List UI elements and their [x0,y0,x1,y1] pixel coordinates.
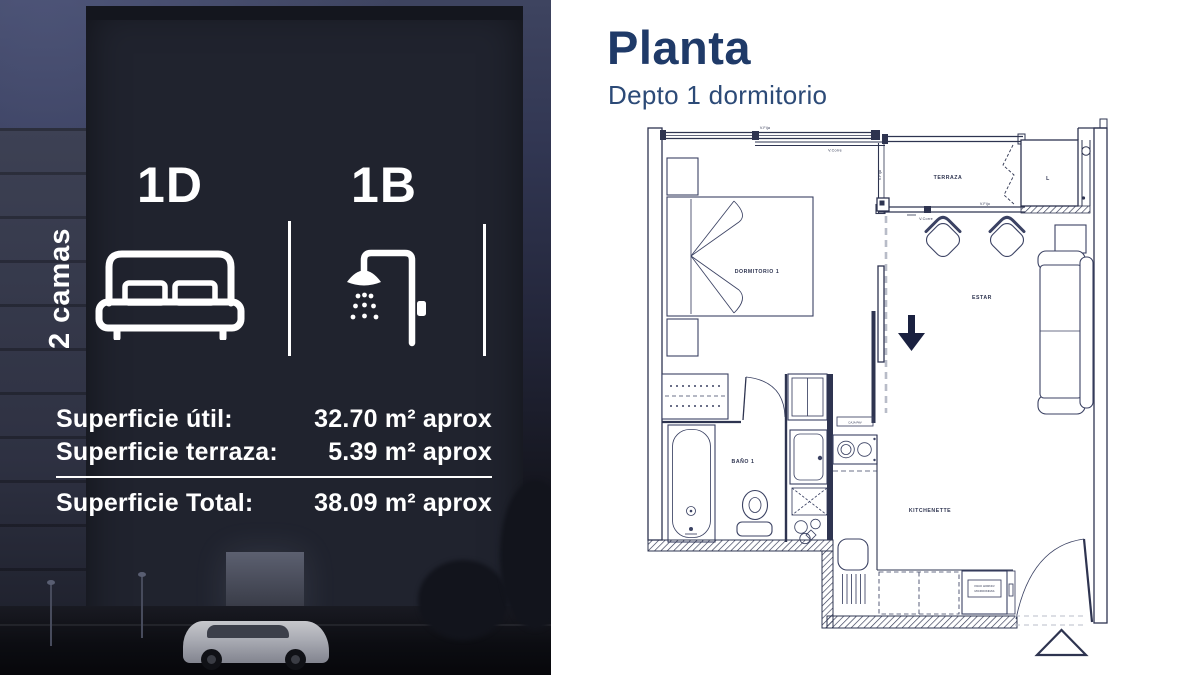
armchair [984,215,1029,260]
tower-parapet [86,6,523,20]
window-label: V.Corre [919,217,933,221]
vanity-sink [790,430,827,484]
dormitorio: DORMITORIO 1 [667,158,813,356]
sofa [1038,251,1093,414]
bedrooms-badge: 1D [95,160,245,210]
triangle-access-icon [1037,630,1086,655]
terraza-folding-door [1003,145,1015,205]
svg-text:CAJA PAV: CAJA PAV [848,421,861,425]
dormitorio-label: DORMITORIO 1 [735,269,780,275]
window-label: V.Fija [760,126,771,130]
bed-icon [95,245,245,340]
hall-cabinet [788,374,827,420]
car-windows [207,625,289,638]
base-cabinets [879,572,959,614]
divider-line [483,224,486,356]
surface-total-row: Superficie Total: 38.09 m² aprox [56,488,492,518]
terraza-label: TERRAZA [934,175,963,181]
surface-value: 5.39 m² aprox [328,437,492,467]
surface-value: 32.70 m² aprox [314,404,492,434]
car-wheel [285,649,306,670]
bathrooms-badge: 1B [338,160,430,210]
floor-plan-drawing: V.Fija V.Corre TERRAZA V.Fijo V.Corre [635,118,1115,663]
terraza: TERRAZA V.Fijo V.Corre V.Fija [876,134,1025,221]
closet [662,374,728,419]
entry-door [1015,539,1092,625]
surface-row: Superficie útil: 32.70 m² aprox [56,404,492,434]
estar-label: ESTAR [972,295,992,301]
duct-shaft [792,488,827,544]
totals-divider [56,476,492,478]
water-heater [1082,147,1090,155]
surface-label: Superficie terraza: [56,437,278,467]
divider-line [288,221,291,356]
double-bed [667,197,813,316]
side-table [1055,225,1086,253]
logia-label: L [1046,176,1050,182]
surface-total-value: 38.09 m² aprox [314,488,492,518]
window-band-top: V.Fija V.Corre [660,126,885,153]
beds-vertical-label: 2 camas [44,227,77,349]
armchair [920,215,965,260]
bathtub [668,425,715,542]
car-wheel [201,649,222,670]
surface-row: Superficie terraza: 5.39 m² aprox [56,437,492,467]
window-label: V.Fijo [980,202,990,206]
window-label: V.Corre [828,149,842,153]
nightstand [667,158,698,195]
tree-silhouette [418,560,508,640]
svg-text:PACK HORNO/: PACK HORNO/ [974,584,994,588]
kitchen-sink [838,539,868,604]
page-subtitle: Depto 1 dormitorio [608,80,827,111]
page-title: Planta [607,24,751,71]
surface-areas-block: Superficie útil: 32.70 m² aprox Superfic… [56,404,492,521]
neighbor-building [0,128,96,675]
real-estate-slide: 2 camas 1D 1B [0,0,1200,675]
svg-text:MICROONDAS: MICROONDAS [975,589,995,593]
logia: L [1021,140,1090,213]
electrical-box: CAJA PAV [837,417,873,426]
down-arrow-icon [898,315,925,351]
nightstand [667,319,698,356]
cooktop [833,435,877,464]
sliding-partition [872,198,890,423]
floor-plan-panel: Planta Depto 1 dormitorio [551,0,1200,675]
kitchenette-label: KITCHENETTE [909,508,951,514]
surface-total-label: Superficie Total: [56,488,253,518]
window-label: V.Fija [878,169,882,180]
lamp-post [141,576,143,638]
oven-microwave-pack: PACK HORNO/ MICROONDAS [962,571,1007,614]
shower-icon [340,243,432,348]
building-photo-panel: 2 camas 1D 1B [0,0,551,675]
bath-door [743,377,785,420]
car [183,621,329,663]
estar: ESTAR [898,215,1093,414]
kitchenette: CAJA PAV [822,374,1017,628]
toilet [737,491,772,537]
bano-label: BAÑO 1 [732,458,755,465]
lamp-post [50,584,52,646]
surface-label: Superficie útil: [56,404,233,434]
